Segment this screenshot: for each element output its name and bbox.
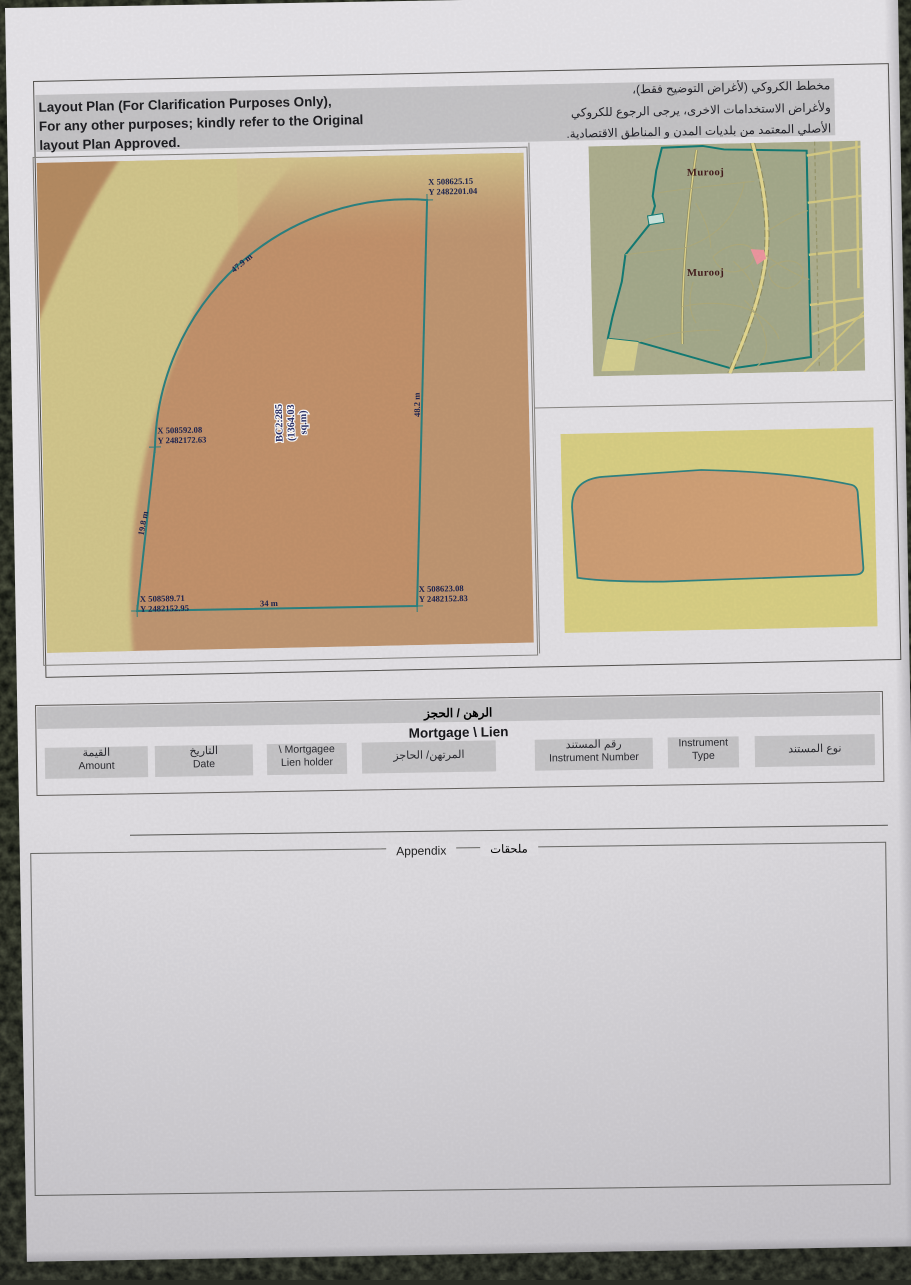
svg-text:Y 2482152.83: Y 2482152.83 [419, 593, 468, 604]
svg-text:BC2:285: BC2:285 [274, 404, 286, 442]
svg-text:Y 2482152.95: Y 2482152.95 [140, 603, 189, 614]
svg-text:Y 2482201.04: Y 2482201.04 [428, 186, 478, 197]
svg-text:Murooj: Murooj [687, 267, 724, 279]
svg-text:Y 2482172.63: Y 2482172.63 [157, 434, 206, 445]
svg-text:34 m: 34 m [260, 598, 279, 608]
svg-text:(1364.03: (1364.03 [286, 404, 298, 441]
svg-text:48.2 m: 48.2 m [412, 392, 423, 417]
svg-text:sq.m): sq.m) [298, 410, 310, 434]
svg-text:Murooj: Murooj [687, 167, 724, 179]
